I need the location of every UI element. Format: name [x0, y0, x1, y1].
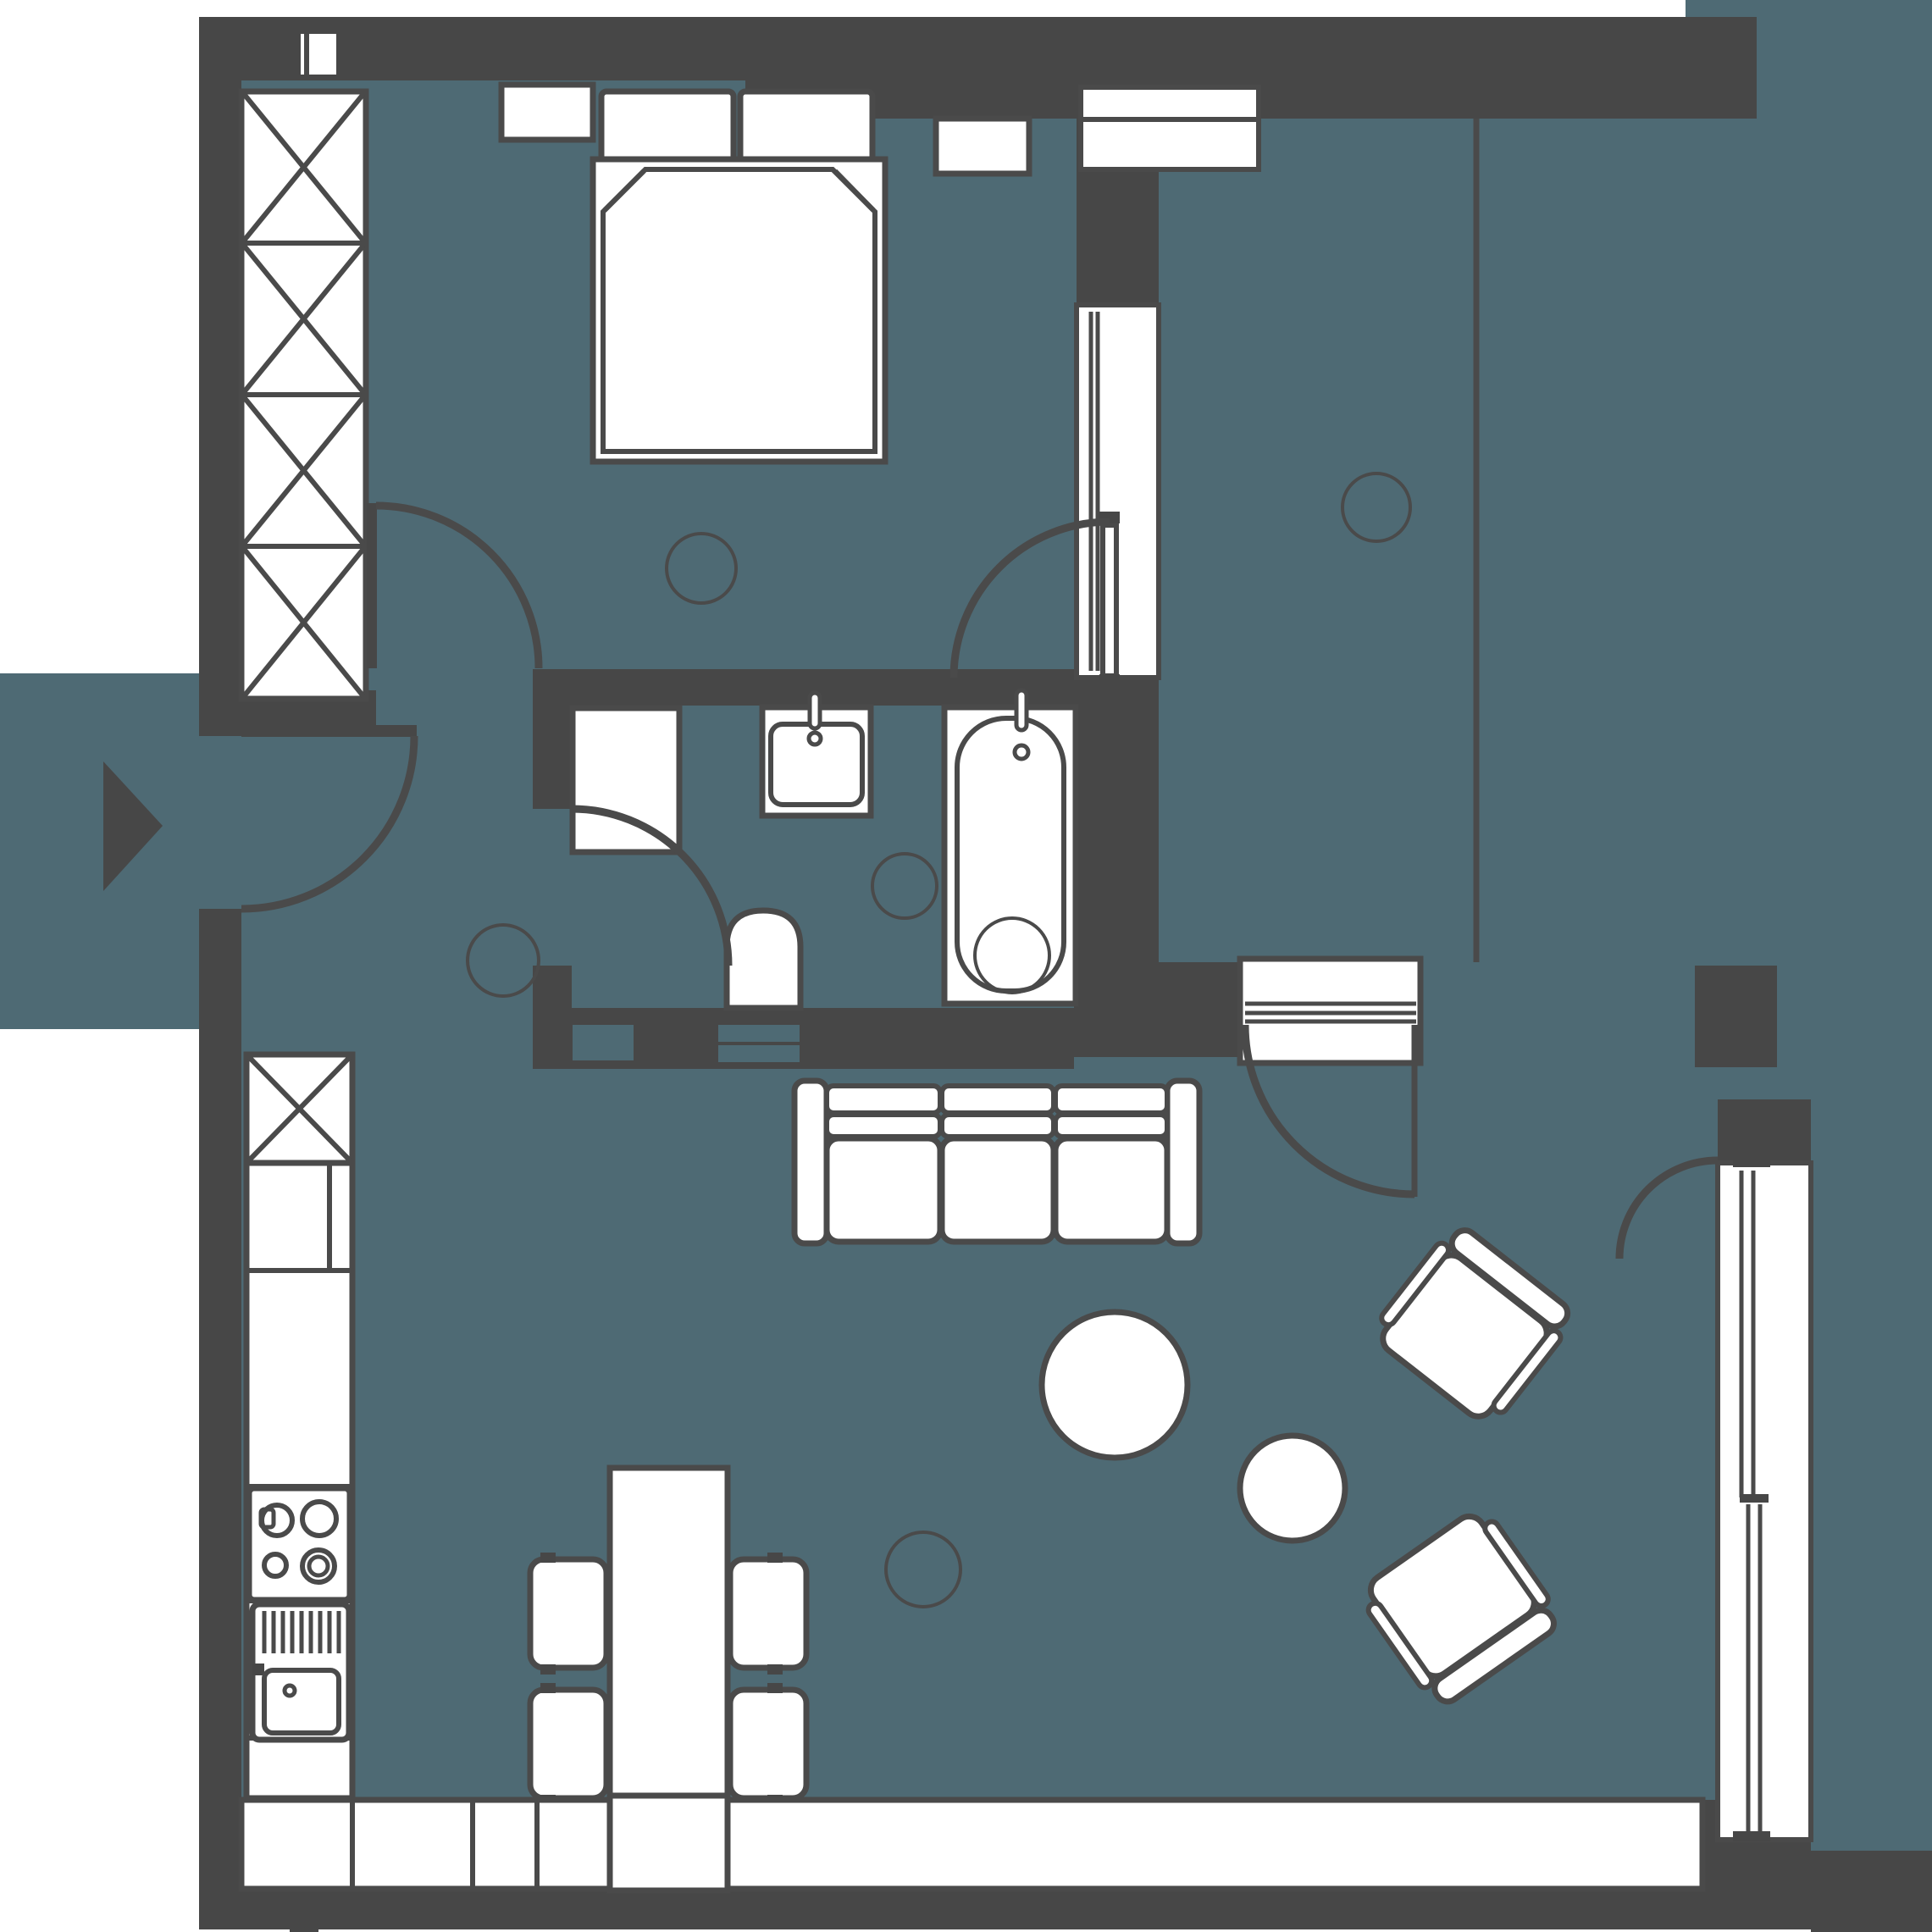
toilet: [727, 911, 800, 1008]
bed-pillow-left: [601, 91, 733, 166]
bottom-counter-run: [241, 1800, 1702, 1889]
floor-margin-right-lower: [1811, 1101, 1932, 1851]
wall-left-lower: [199, 909, 241, 1929]
floor-corridor-outside-entry: [0, 673, 203, 1029]
sofa-back-2: [942, 1086, 1054, 1113]
wall-right-room-south: [1159, 962, 1240, 1057]
floor-margin-right-mid: [1777, 966, 1932, 1101]
bed-pillow-right: [740, 91, 872, 166]
window-east-nub-bottom: [1733, 1831, 1770, 1841]
wall-top-left-section: [199, 17, 745, 80]
chair-bl-nub-a: [540, 1683, 556, 1693]
right-room-cabinet: [1081, 87, 1259, 169]
chair-top-left: [530, 1559, 606, 1668]
sofa-armrest-left: [794, 1081, 827, 1243]
balcony-door-nub-bottom: [1099, 674, 1120, 686]
bathroom-sink-basin: [771, 724, 862, 805]
chair-bottom-right: [730, 1690, 806, 1798]
chair-tr-nub-a: [767, 1553, 783, 1563]
nightstand-right: [936, 119, 1029, 174]
washing-machine: [573, 708, 679, 852]
floor-plan-svg: [0, 0, 1932, 1932]
wall-neighbor-corner: [1811, 1851, 1932, 1932]
chair-tr-nub-b: [767, 1664, 783, 1675]
window-east-nub-top: [1733, 1157, 1770, 1167]
chair-bottom-left: [530, 1690, 606, 1798]
sofa-seat-1: [827, 1138, 940, 1242]
balcony-door-leaf: [1103, 525, 1116, 676]
floor-plan: [0, 0, 1932, 1932]
wall-bottom: [199, 1887, 1811, 1929]
bathtub-faucet: [1016, 690, 1027, 730]
chair-tl-nub-a: [540, 1553, 556, 1563]
kitchen-sink-basin: [264, 1670, 339, 1733]
bed-mattress: [603, 169, 875, 451]
nightstand-left: [501, 85, 593, 140]
sofa-mid-2: [942, 1115, 1054, 1137]
wall-threshold-tick: [290, 1924, 318, 1932]
sofa-armrest-right: [1167, 1081, 1199, 1243]
sink-tap-block: [252, 1664, 264, 1675]
chair-br-nub-a: [767, 1683, 783, 1693]
floor-margin-right-upper: [1757, 0, 1932, 966]
wall-bathroom-west-upper: [533, 706, 572, 809]
sofa-mid-3: [1055, 1115, 1167, 1137]
wall-neighbor-top: [1695, 966, 1777, 1067]
side-table-small: [1240, 1436, 1345, 1541]
sofa-mid-1: [827, 1115, 940, 1137]
wall-bathroom-top: [533, 669, 1076, 706]
stove: [249, 1488, 350, 1600]
wall-left-upper: [199, 17, 241, 736]
sofa-back-3: [1055, 1086, 1167, 1113]
sofa-back-1: [827, 1086, 940, 1113]
chair-top-right: [730, 1559, 806, 1668]
bedroom-door-leaf: [367, 503, 377, 668]
chair-tl-nub-b: [540, 1664, 556, 1675]
niche-bathroom-shelf-lower: [718, 1045, 800, 1062]
wall-window-top-block: [1718, 1099, 1811, 1163]
niche-bathroom-shelf-upper: [718, 1025, 800, 1042]
wall-window-bottom-block: [1718, 1840, 1811, 1929]
window-east-nub-mid: [1740, 1494, 1769, 1503]
sofa-seat-2: [942, 1138, 1054, 1242]
side-table-large: [1042, 1312, 1187, 1458]
entry-door-leaf: [241, 725, 417, 737]
sink-faucet: [810, 693, 820, 728]
niche-bathroom-left: [573, 1025, 634, 1060]
wall-shaft-column: [1074, 673, 1159, 1057]
dining-table-over-counter: [610, 1796, 728, 1890]
sofa-seat-3: [1055, 1138, 1167, 1242]
